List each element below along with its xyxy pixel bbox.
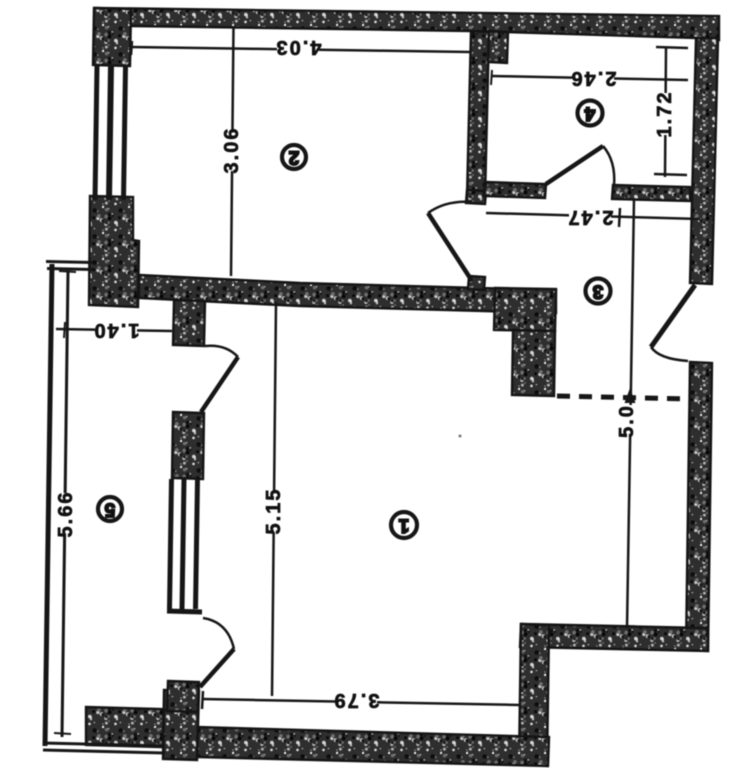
svg-text:4.03: 4.03: [275, 36, 322, 58]
svg-text:4: 4: [584, 103, 595, 124]
svg-text:5: 5: [104, 499, 115, 520]
svg-text:5.0: 5.0: [616, 404, 638, 438]
svg-text:3.06: 3.06: [221, 127, 243, 174]
svg-text:3: 3: [593, 281, 604, 302]
svg-text:3.79: 3.79: [333, 689, 380, 711]
svg-text:2.47: 2.47: [567, 206, 614, 228]
svg-text:2.46: 2.46: [570, 67, 617, 89]
svg-text:2: 2: [289, 147, 300, 168]
svg-text:1.40: 1.40: [93, 319, 140, 341]
svg-text:5.66: 5.66: [55, 491, 77, 538]
svg-text:5.15: 5.15: [263, 488, 285, 535]
svg-text:1.72: 1.72: [654, 91, 676, 138]
svg-text:1: 1: [398, 515, 409, 536]
